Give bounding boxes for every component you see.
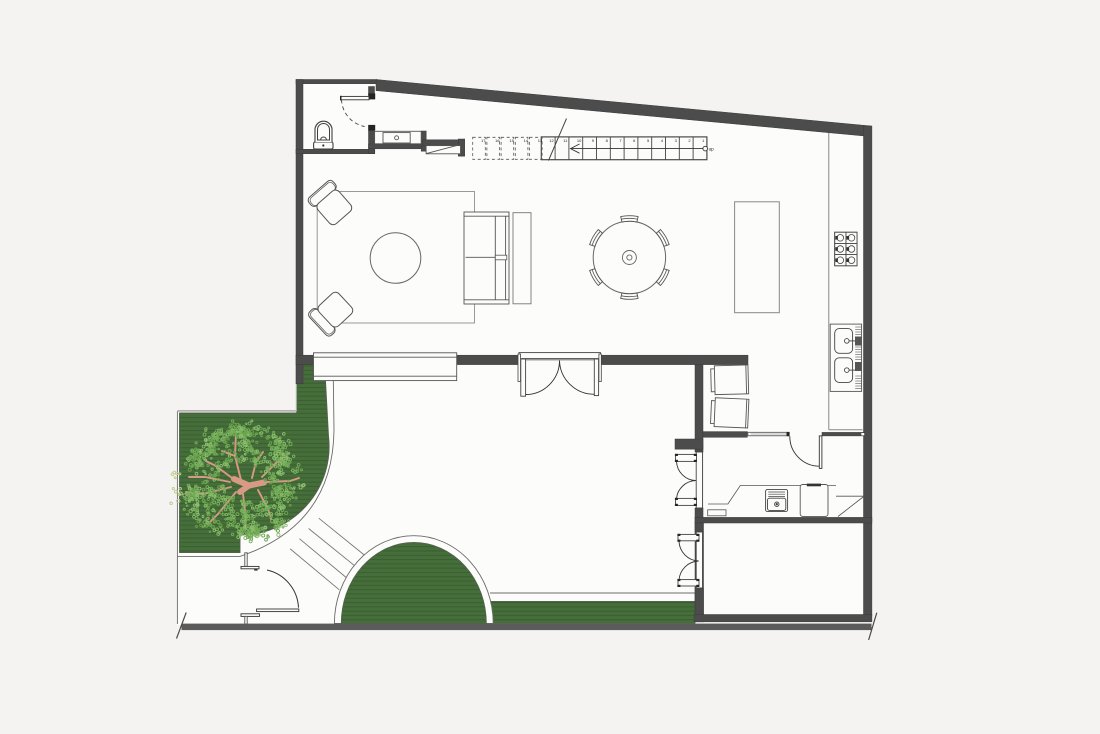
svg-text:13: 13 (538, 138, 543, 143)
svg-text:10: 10 (577, 138, 582, 143)
svg-text:16: 16 (495, 138, 500, 143)
svg-text:12: 12 (549, 138, 554, 143)
svg-text:15: 15 (509, 138, 514, 143)
svg-text:14: 14 (524, 138, 529, 143)
svg-text:up: up (709, 146, 715, 151)
svg-text:17: 17 (481, 138, 486, 143)
